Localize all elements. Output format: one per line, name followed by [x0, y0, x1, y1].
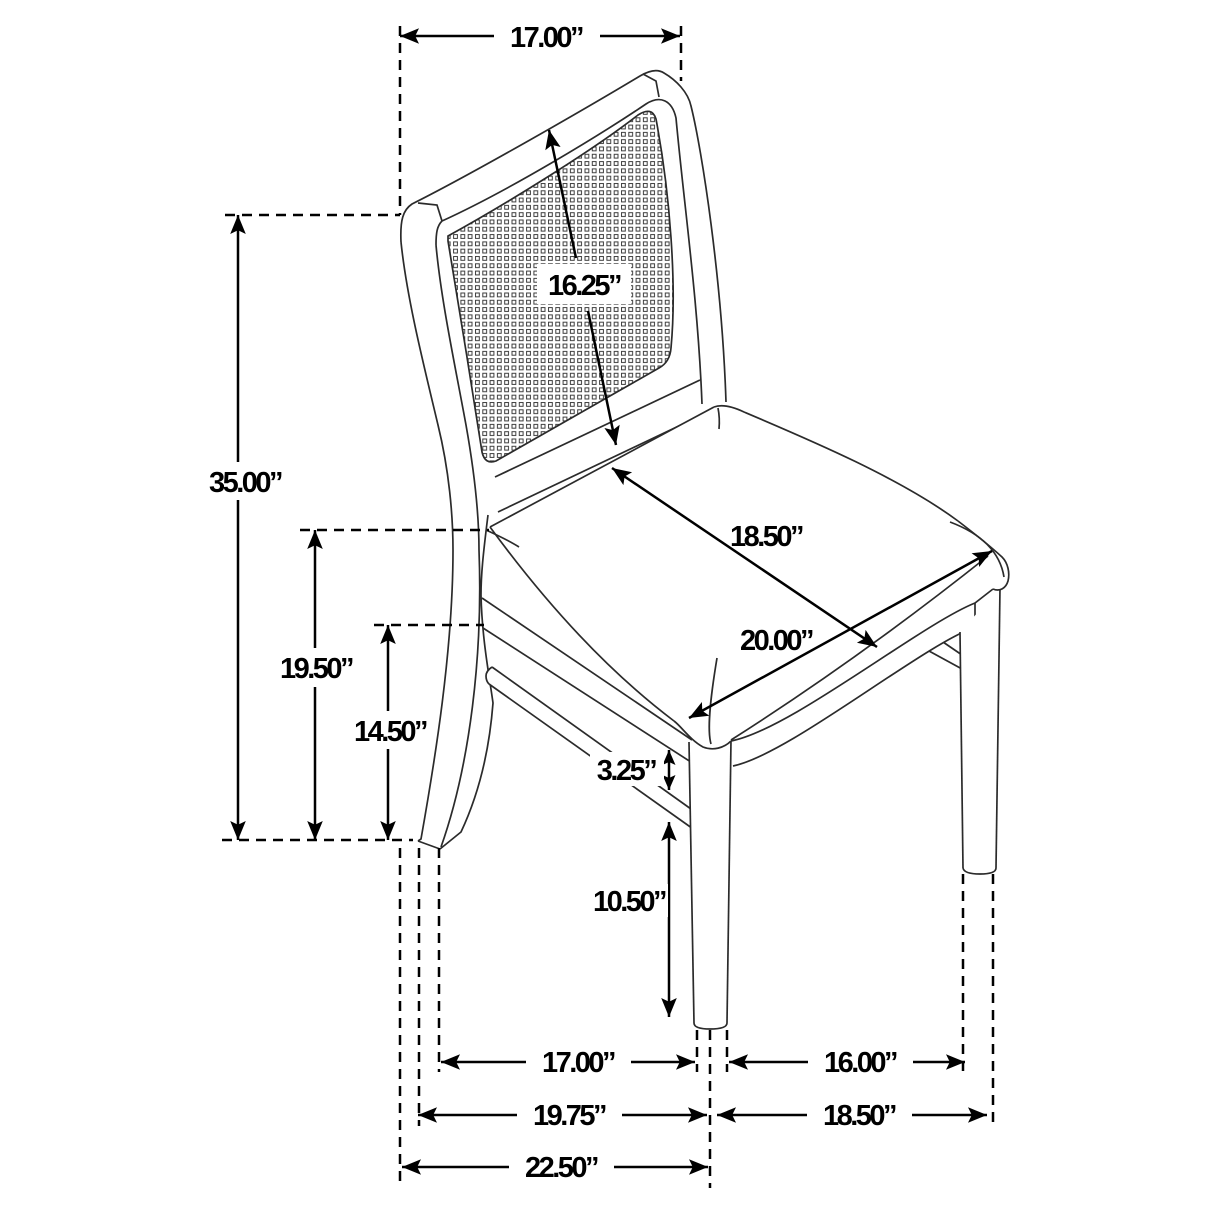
svg-text:17.00”: 17.00” — [510, 22, 583, 54]
svg-text:19.50”: 19.50” — [280, 653, 353, 685]
svg-text:14.50”: 14.50” — [354, 716, 427, 748]
svg-text:35.00”: 35.00” — [209, 467, 282, 499]
svg-text:16.00”: 16.00” — [824, 1047, 897, 1079]
svg-text:22.50”: 22.50” — [525, 1152, 598, 1184]
svg-text:18.50”: 18.50” — [730, 521, 803, 553]
svg-text:3.25”: 3.25” — [597, 755, 656, 787]
svg-text:17.00”: 17.00” — [542, 1047, 615, 1079]
svg-text:18.50”: 18.50” — [823, 1100, 896, 1132]
svg-text:19.75”: 19.75” — [533, 1100, 606, 1132]
svg-text:20.00”: 20.00” — [740, 625, 813, 657]
svg-text:10.50”: 10.50” — [593, 886, 666, 918]
svg-text:16.25”: 16.25” — [548, 270, 621, 302]
